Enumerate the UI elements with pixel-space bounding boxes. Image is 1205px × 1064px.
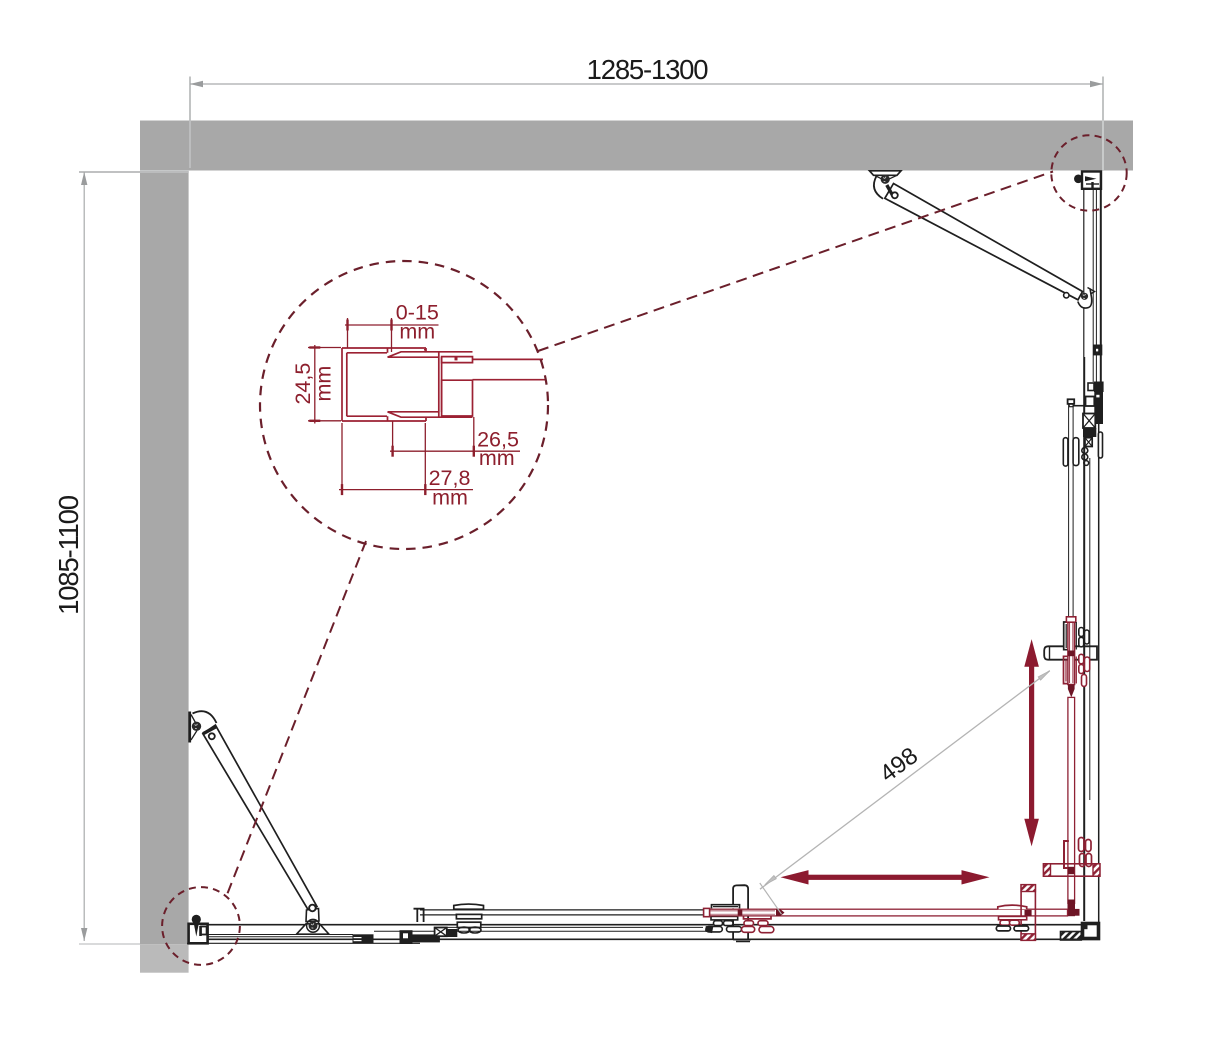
svg-text:mm: mm [479, 446, 515, 470]
svg-text:mm: mm [432, 486, 468, 510]
svg-text:mm: mm [312, 366, 336, 402]
svg-text:1285-1300: 1285-1300 [587, 54, 709, 85]
svg-text:1085-1100: 1085-1100 [53, 495, 84, 615]
svg-text:mm: mm [399, 320, 435, 344]
